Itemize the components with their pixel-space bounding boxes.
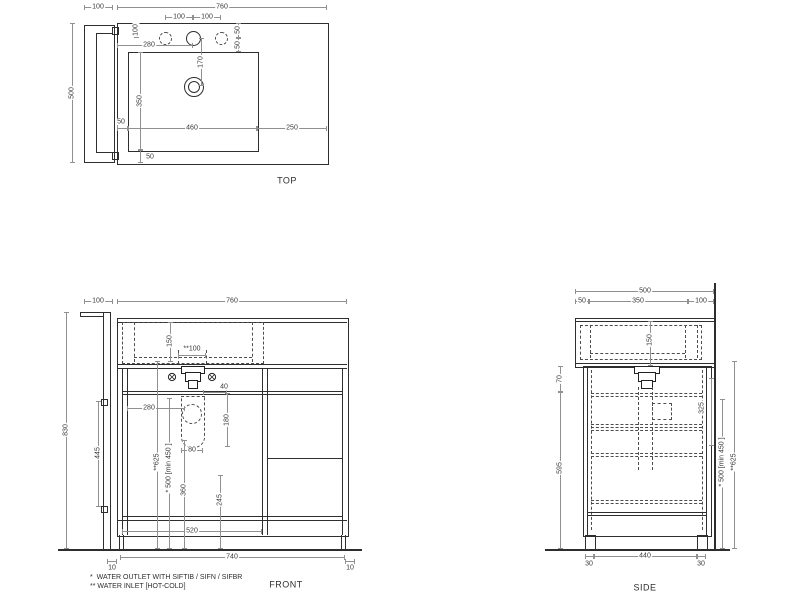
water-valve-icon [167, 372, 177, 382]
dim-tap-right-spacing: 100 [200, 14, 214, 21]
dim-basin-gap-front: 50 [145, 154, 155, 161]
foot [697, 535, 708, 551]
dim-top-overall-width: 760 [215, 4, 229, 11]
drain-hole-inner [188, 81, 200, 93]
hidden-line [591, 456, 702, 457]
hidden-line [591, 393, 702, 394]
dim-tap-setback: 100 [133, 23, 140, 37]
line [80, 316, 103, 317]
optional-tap-hole-right [215, 32, 228, 45]
hinge-mark [101, 399, 108, 406]
dim-water-inlet-spacing: **100 [182, 346, 201, 353]
dim-line [220, 475, 221, 549]
dim-trap-height: 180 [224, 413, 231, 427]
hidden-pipe-line [652, 387, 653, 470]
line [122, 391, 342, 392]
leg [345, 535, 346, 549]
dim-right-hole-offset-b: 50 [235, 40, 242, 50]
top-side-panel-outline [84, 25, 115, 163]
dim-side-overall-depth: 500 [638, 288, 652, 295]
side-panel-edge [110, 312, 111, 549]
dim-line [127, 408, 185, 409]
hidden-pipe-line [638, 387, 639, 470]
dim-back-gap: 100 [694, 298, 708, 305]
dim-feet-spacing: 740 [225, 554, 239, 561]
hinge-mark [101, 506, 108, 513]
line [96, 33, 113, 34]
hidden-line [702, 370, 703, 530]
water-valve-icon [207, 372, 217, 382]
hidden-line [590, 353, 685, 354]
line [575, 321, 714, 322]
dim-line [107, 561, 117, 562]
dim-water-outlet-height: * 500 [min 450 ] [166, 442, 173, 493]
hidden-line [591, 500, 702, 501]
dim-foot-inset-left: 10 [107, 565, 117, 572]
dim-line [117, 128, 128, 129]
dim-drain-from-tap: 170 [198, 55, 205, 69]
panel-connector [112, 27, 119, 35]
dim-side-feet-spacing: 440 [638, 553, 652, 560]
dim-side-water-outlet-height: * 500 [min 450 ] [719, 436, 726, 487]
hidden-line [591, 430, 702, 431]
line [122, 516, 342, 517]
drawing-sheet: 100 760 100 100 500 100 280 50 50 170 35… [0, 0, 800, 600]
dim-basin-depth: 350 [137, 94, 144, 108]
line [80, 312, 110, 313]
hidden-line [591, 453, 702, 454]
leg [119, 535, 120, 549]
note-water-inlet: ** WATER INLET [HOT-COLD] [90, 583, 186, 591]
side-view-label: SIDE [633, 584, 656, 593]
dim-front-side-panel-width: 100 [91, 298, 105, 305]
line [117, 368, 347, 369]
dim-tap-from-left: 280 [142, 42, 156, 49]
hidden-line [206, 350, 207, 364]
hidden-line [134, 322, 135, 362]
leg [123, 535, 124, 549]
hidden-line [252, 322, 253, 362]
foot [585, 535, 596, 551]
plinth-line [117, 520, 347, 521]
dim-worktop-drop: 70 [557, 374, 564, 384]
hidden-basin-outline [580, 325, 702, 360]
hidden-line [697, 325, 698, 358]
dim-line [585, 556, 594, 557]
line [96, 152, 113, 153]
hidden-line [134, 357, 252, 358]
dim-line [140, 150, 141, 163]
line [706, 366, 707, 535]
dim-right-hole-offset-a: 50 [235, 25, 242, 35]
dim-basin-width: 460 [185, 125, 199, 132]
dim-foot-inset-back: 30 [696, 561, 706, 568]
dim-pipe-height-a: 360 [181, 483, 188, 497]
dim-line [203, 392, 227, 393]
dim-line [711, 378, 712, 446]
line [587, 366, 588, 535]
dim-side-basin-inner-height: 150 [647, 333, 654, 347]
floor-line [58, 549, 362, 551]
hidden-line [591, 396, 702, 397]
dim-plinth-width: 520 [185, 528, 199, 535]
dim-side-basin-depth: 350 [631, 298, 645, 305]
dim-hinge-spacing: 445 [95, 446, 102, 460]
side-panel-edge [103, 312, 104, 549]
dim-tap-left-spacing: 100 [172, 14, 186, 21]
dim-cabinet-height: 595 [557, 461, 564, 475]
line [122, 394, 342, 395]
hidden-line [685, 325, 686, 358]
top-view-label: TOP [277, 177, 297, 186]
dim-basin-inner-height: 150 [167, 334, 174, 348]
line [117, 364, 347, 365]
dim-trap-width: 80 [187, 447, 197, 454]
dim-pipe-height-b: 245 [217, 493, 224, 507]
leg [341, 535, 342, 549]
line [96, 33, 97, 153]
dim-side-water-inlet-height: **625 [731, 452, 738, 471]
panel-connector [112, 152, 119, 160]
dim-trap-from-left: 280 [142, 405, 156, 412]
line [342, 368, 343, 535]
hidden-line [591, 427, 702, 428]
dim-top-overall-depth: 500 [69, 86, 76, 100]
line [587, 512, 706, 513]
hidden-trap-outline [652, 403, 672, 420]
dim-line [178, 355, 206, 356]
hidden-line [591, 370, 592, 530]
optional-tap-hole-left [159, 32, 172, 45]
dim-water-inlet-height: **625 [154, 452, 161, 471]
dim-foot-inset-front: 30 [584, 561, 594, 568]
dim-front-edge: 50 [577, 298, 587, 305]
hidden-line [591, 503, 702, 504]
hidden-line [591, 424, 702, 425]
dim-drain-offset: 40 [219, 384, 229, 391]
dim-basin-gap-left: 50 [116, 119, 126, 126]
note-water-outlet: * WATER OUTLET WITH SIFTIB / SIFN / SIFB… [90, 574, 242, 582]
dim-overall-height: 830 [63, 423, 70, 437]
dim-line [697, 556, 706, 557]
shelf-line [267, 458, 342, 459]
line [575, 363, 714, 364]
drain-tailpiece [188, 380, 198, 389]
dim-top-side-panel-width: 100 [91, 4, 105, 11]
hidden-trap-circle [182, 404, 202, 424]
front-view-label: FRONT [269, 581, 303, 590]
top-basin-outline [128, 52, 259, 152]
dim-front-overall-width: 760 [225, 298, 239, 305]
dim-foot-inset-right: 10 [345, 565, 355, 572]
dim-line [345, 561, 355, 562]
dim-counter-right: 250 [285, 125, 299, 132]
dim-outlet-depth: 325 [699, 401, 706, 415]
line [587, 515, 706, 516]
